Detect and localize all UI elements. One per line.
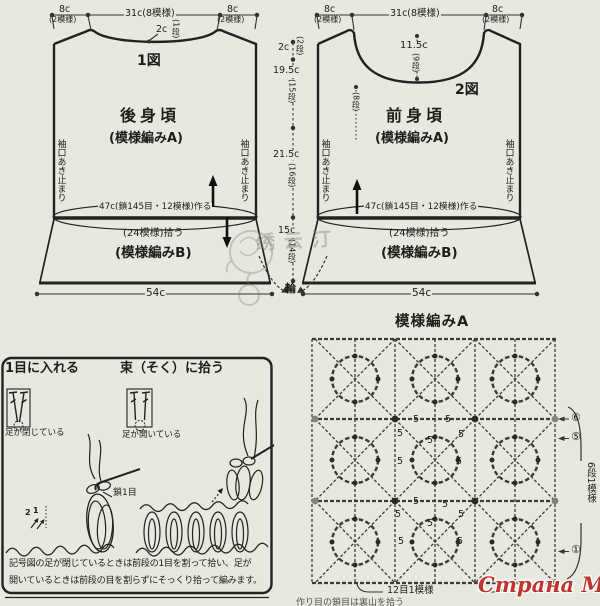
front-pick-up-note: (24模様)拾う: [389, 229, 450, 240]
chart-chain-count: 5: [442, 500, 448, 510]
chart-footnote: 作り目の鎖目は裏山を拾う: [296, 599, 404, 606]
back-top-width-dim: 31c(8模様): [124, 9, 176, 19]
howto-caption-split: 足が閉じている: [5, 429, 65, 438]
front-shoulder-right-sub: (2模様): [482, 16, 509, 24]
howto-step-number-2: 2: [25, 509, 31, 517]
front-shoulder-left-dim: 8c: [324, 5, 335, 15]
front-neck-depth-dim: 11.5c: [399, 41, 429, 52]
back-neck-drop-rows: (1段): [171, 19, 179, 38]
chart-row-marker-6: ⑥: [571, 412, 581, 424]
front-pattern-a-label: (模様編みA): [375, 132, 449, 146]
center-upper-dim: 19.5c: [272, 66, 300, 76]
howto-note-line-2: 開いているときは前段の目を割らずにそっくり拾って編みます。: [9, 576, 262, 586]
howto-title-split: 1目に入れる: [5, 362, 79, 376]
back-neck-drop-dim: 2c: [156, 25, 167, 35]
front-neck-side-rows: (8段): [350, 92, 360, 111]
front-pattern-b-label: (模様編みB): [381, 246, 458, 260]
chart-horizontal-repeat: 12目1模様: [386, 586, 435, 596]
back-piece-name: 後身頃: [120, 108, 180, 125]
back-pick-up-note: (24模様)拾う: [123, 229, 184, 240]
back-hem-width-dim: 54c: [145, 288, 166, 299]
back-shoulder-right-sub: (2模様): [217, 16, 244, 24]
chart-chain-count: 5: [456, 457, 462, 467]
front-neck-depth-rows: (9段): [410, 53, 420, 72]
chart-row-marker-1: ①: [571, 544, 581, 556]
front-piece-name: 前身頃: [386, 108, 446, 125]
front-shoulder-right-dim: 8c: [492, 5, 503, 15]
center-upper-rows: (15段): [286, 79, 296, 103]
site-watermark: Страна Мам: [478, 574, 600, 596]
chart-chain-count: 5: [395, 510, 401, 520]
center-yoke-rows: (2段): [295, 36, 303, 55]
howto-chain-label: 鎖1目: [113, 489, 137, 498]
front-armhole-note-left: 袖口あき止まり: [319, 139, 328, 202]
front-figure-label: 2図: [455, 83, 479, 98]
howto-title-whole: 束（そく）に拾う: [120, 362, 224, 376]
chart-chain-count: 5: [397, 429, 403, 439]
chart-chain-count: 5: [427, 519, 433, 529]
back-cast-on-note: 47c(鎖145目・12模様)作る: [98, 203, 212, 212]
back-pattern-b-label: (模様編みB): [115, 246, 192, 260]
back-figure-label: 1図: [137, 54, 161, 69]
center-lower-rows: (16段): [286, 163, 296, 187]
center-yoke-dim: 2c: [277, 43, 290, 53]
chart-vertical-repeat: 6段1模様: [584, 462, 596, 503]
front-hem-width-dim: 54c: [411, 288, 432, 299]
chart-chain-count: 5: [427, 436, 433, 446]
front-armhole-note-right: 袖口あき止まり: [503, 139, 512, 202]
chart-annotation-lines: [357, 407, 581, 592]
schematic-linework: [0, 0, 600, 606]
center-ring-label: 輪: [285, 283, 296, 295]
howto-caption-whole: 足が開いている: [122, 431, 181, 440]
chart-chain-count: 5: [458, 510, 464, 520]
back-shoulder-left-dim: 8c: [59, 5, 70, 15]
chart-title: 模様編みA: [395, 315, 469, 330]
chart-chain-count: 5: [457, 537, 463, 547]
chart-chain-count: 5: [413, 415, 419, 425]
stitch-chart-lattice: [312, 339, 557, 583]
back-armhole-note-left: 袖口あき止まり: [55, 139, 64, 202]
front-shoulder-left-sub: (2模様): [314, 16, 341, 24]
back-armhole-note-right: 袖口あき止まり: [238, 139, 247, 202]
back-pattern-a-label: (模様編みA): [109, 132, 183, 146]
chart-row-marker-5: ⑤: [571, 431, 581, 443]
chart-chain-count: 5: [398, 537, 404, 547]
center-lower-dim: 21.5c: [272, 150, 300, 160]
howto-step-number-1: 1: [33, 507, 39, 515]
chart-chain-count: 5: [413, 497, 419, 507]
chart-chain-count: 5: [397, 457, 403, 467]
pattern-page: 8c (2模様) 31c(8模様) 8c (2模様) 2c (1段) 1図 後身…: [0, 0, 600, 606]
front-top-width-dim: 31c(8模様): [389, 9, 441, 19]
crochet-illustration-whole: [136, 398, 274, 556]
back-shoulder-left-sub: (2模様): [49, 16, 76, 24]
front-cast-on-note: 47c(鎖145目・12模様)作る: [364, 203, 478, 212]
chart-chain-count: 5: [445, 415, 451, 425]
back-shoulder-right-dim: 8c: [227, 5, 238, 15]
howto-note-line-1: 記号図の足が閉じているときは前段の1目を割って拾い、足が: [9, 559, 251, 569]
chart-chain-count: 5: [458, 430, 464, 440]
